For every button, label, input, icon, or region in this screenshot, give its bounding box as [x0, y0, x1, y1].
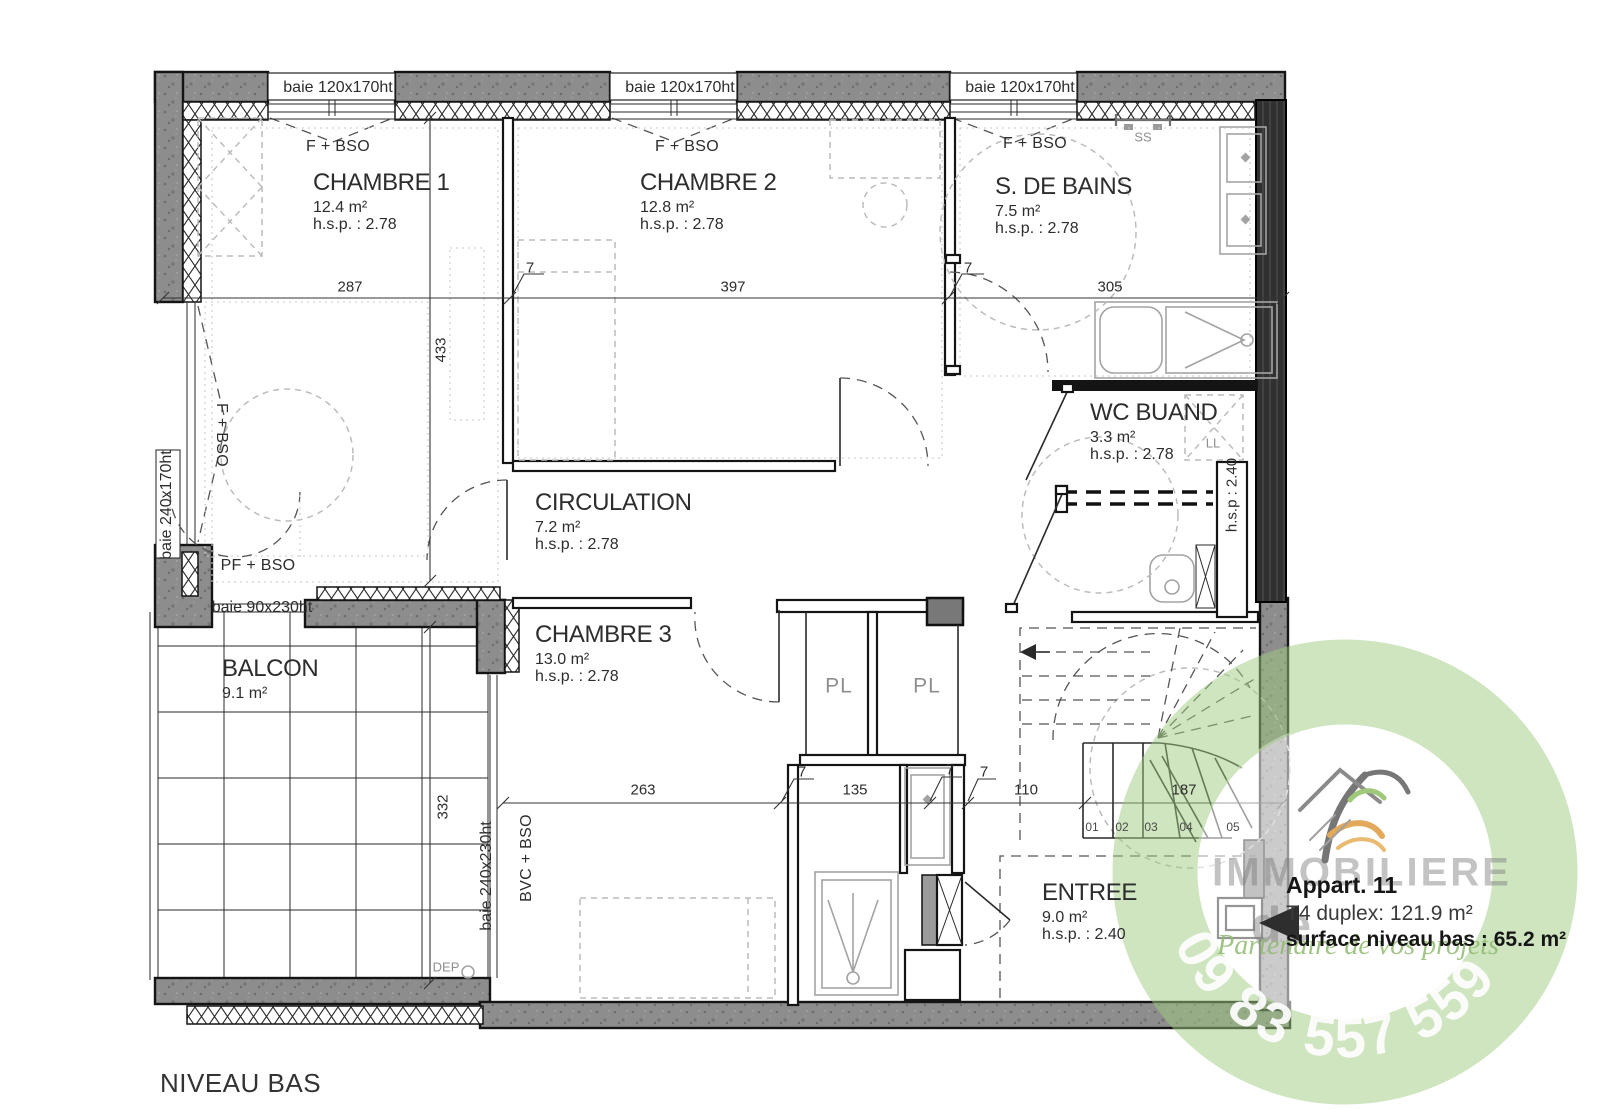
room-area: 3.3 m² — [1090, 429, 1217, 446]
tag-bvc-bso: BVC + BSO — [519, 814, 535, 902]
tag-f-bso-2: F + BSO — [655, 139, 719, 155]
room-height: h.s.p. : 2.78 — [640, 216, 776, 233]
dim-7-b: 7 — [964, 261, 972, 276]
closet-label-left: PL — [825, 676, 853, 697]
room-height: h.s.p. : 2.78 — [535, 668, 671, 685]
dim-263: 263 — [630, 783, 655, 798]
room-name: WC BUAND — [1090, 400, 1217, 426]
room-name: CIRCULATION — [535, 490, 692, 516]
room-height: h.s.p. : 2.78 — [1090, 446, 1217, 463]
stair-step-02: 02 — [1115, 821, 1128, 833]
dim-7-a: 7 — [526, 261, 534, 276]
room-area: 9.0 m² — [1042, 909, 1137, 926]
stair-step-01: 01 — [1085, 821, 1098, 833]
tag-f-bso-left: F + BSO — [213, 403, 229, 467]
dim-135: 135 — [842, 783, 867, 798]
room-label-entree: ENTREE 9.0 m² h.s.p. : 2.40 — [1042, 880, 1137, 943]
stair-step-04: 04 — [1179, 821, 1192, 833]
dim-7-c: 7 — [798, 765, 806, 780]
label-hsp-duct: h.s.p : 2.40 — [1225, 458, 1240, 532]
room-label-wc: WC BUAND 3.3 m² h.s.p. : 2.78 — [1090, 400, 1217, 463]
label-ll-washer: LL — [1206, 437, 1220, 450]
dim-397: 397 — [720, 280, 745, 295]
dim-287: 287 — [337, 280, 362, 295]
room-label-chambre3: CHAMBRE 3 13.0 m² h.s.p. : 2.78 — [535, 622, 671, 685]
dim-7-d: 7 — [946, 763, 954, 778]
room-name: BALCON — [222, 656, 318, 682]
dim-187: 187 — [1171, 783, 1196, 798]
apartment-number: Appart. 11 — [1286, 872, 1566, 899]
room-label-chambre2: CHAMBRE 2 12.8 m² h.s.p. : 2.78 — [640, 170, 776, 233]
dim-7-e: 7 — [980, 765, 988, 780]
window-label-top-3: baie 120x170ht — [965, 80, 1074, 96]
label-ss-towel-dryer: SS — [1134, 131, 1151, 144]
room-area: 7.2 m² — [535, 519, 692, 536]
room-name: CHAMBRE 1 — [313, 170, 449, 196]
window-label-balcony-door: baie 240x230ht — [479, 821, 495, 930]
window-label-balcony-small: baie 90x230ht — [212, 600, 313, 616]
stair-step-05: 05 — [1226, 821, 1239, 833]
room-area: 13.0 m² — [535, 651, 671, 668]
dim-332: 332 — [436, 794, 451, 819]
room-name: CHAMBRE 2 — [640, 170, 776, 196]
plan-title: NIVEAU BAS — [160, 1068, 321, 1099]
window-label-top-2: baie 120x170ht — [625, 80, 734, 96]
closet-label-right: PL — [913, 676, 941, 697]
tag-f-bso-3: F + BSO — [1003, 136, 1067, 152]
apartment-annotation: Appart. 11 T4 duplex: 121.9 m² surface n… — [1286, 872, 1566, 952]
room-name: S. DE BAINS — [995, 174, 1132, 200]
tag-pf-bso: PF + BSO — [221, 558, 296, 574]
room-label-chambre1: CHAMBRE 1 12.4 m² h.s.p. : 2.78 — [313, 170, 449, 233]
room-area: 12.4 m² — [313, 199, 449, 216]
room-name: ENTREE — [1042, 880, 1137, 906]
room-area: 7.5 m² — [995, 203, 1132, 220]
window-label-top-1: baie 120x170ht — [283, 80, 392, 96]
room-label-circulation: CIRCULATION 7.2 m² h.s.p. : 2.78 — [535, 490, 692, 553]
dim-433: 433 — [434, 337, 449, 362]
window-label-left: baie 240x170ht — [159, 450, 175, 559]
room-area: 12.8 m² — [640, 199, 776, 216]
room-height: h.s.p. : 2.78 — [995, 220, 1132, 237]
room-height: h.s.p. : 2.40 — [1042, 926, 1137, 943]
floor-plan-page: .w{fill:url(#conc);stroke:#141414;stroke… — [0, 0, 1600, 1109]
room-label-sdb: S. DE BAINS 7.5 m² h.s.p. : 2.78 — [995, 174, 1132, 237]
stair-step-03: 03 — [1144, 821, 1157, 833]
room-name: CHAMBRE 3 — [535, 622, 671, 648]
tag-f-bso-1: F + BSO — [306, 139, 370, 155]
apartment-type: T4 duplex: 121.9 m² — [1286, 902, 1566, 926]
dim-110: 110 — [1014, 783, 1038, 798]
dim-305: 305 — [1097, 280, 1122, 295]
room-area: 9.1 m² — [222, 685, 318, 702]
room-label-balcon: BALCON 9.1 m² — [222, 656, 318, 702]
room-height: h.s.p. : 2.78 — [313, 216, 449, 233]
room-height: h.s.p. : 2.78 — [535, 536, 692, 553]
apartment-surface: surface niveau bas : 65.2 m² — [1286, 928, 1566, 952]
label-dep-drain: DEP — [433, 961, 460, 974]
